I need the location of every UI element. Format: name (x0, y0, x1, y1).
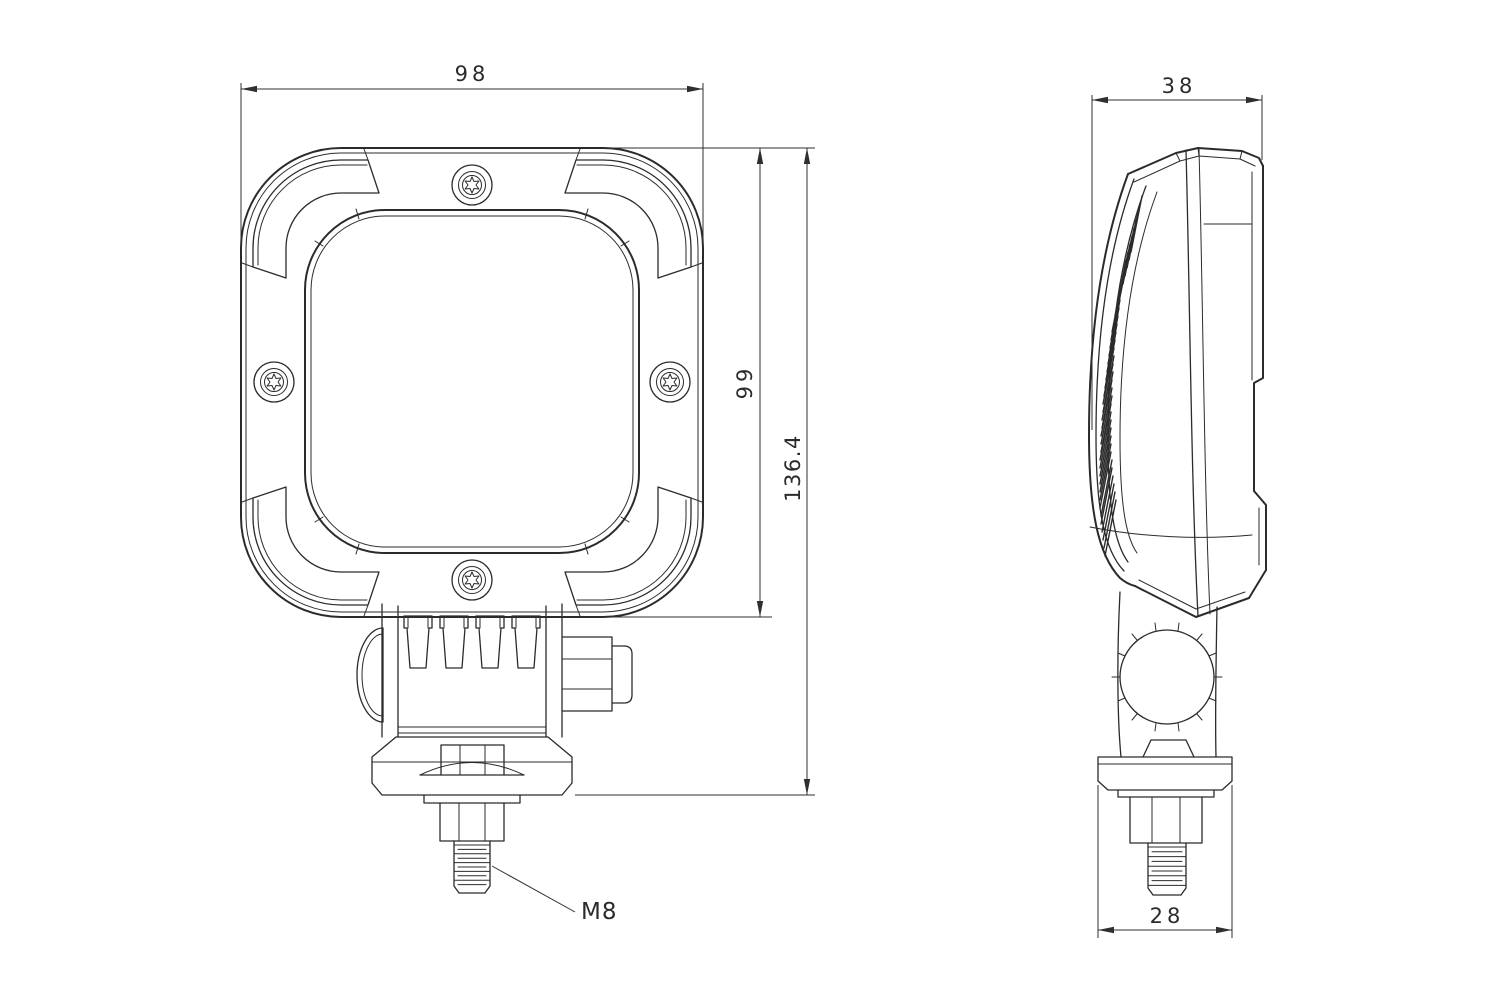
lamp-technical-drawing: 98 99 136.4 38 (0, 0, 1500, 1000)
technical-drawing-page: 98 99 136.4 38 (0, 0, 1500, 1000)
drawing-background (0, 0, 1500, 1000)
front-total-height-dim-label: 136.4 (781, 434, 805, 502)
front-body-height-dim-label: 99 (733, 365, 757, 400)
thread-callout-label: M8 (581, 899, 617, 925)
front-width-dim-label: 98 (455, 62, 490, 86)
side-depth-dim-label: 38 (1162, 74, 1197, 98)
side-base-width-dim-label: 28 (1150, 904, 1185, 928)
